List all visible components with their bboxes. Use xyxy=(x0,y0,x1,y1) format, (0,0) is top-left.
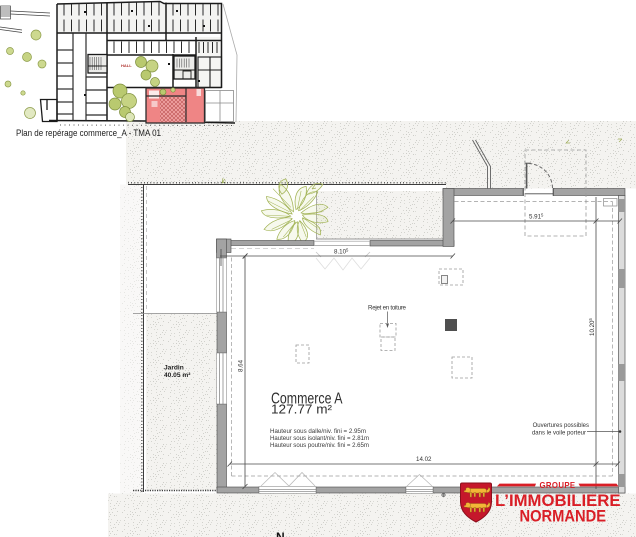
svg-text:Ouvertures possibles: Ouvertures possibles xyxy=(533,423,589,429)
svg-text:Hauteur sous poutre/niv. fini: Hauteur sous poutre/niv. fini = 2.65m xyxy=(270,442,369,449)
svg-text:GROUPE: GROUPE xyxy=(540,480,576,490)
svg-text:N: N xyxy=(276,530,285,537)
svg-text:NORMANDE: NORMANDE xyxy=(520,507,607,526)
svg-text:8.64: 8.64 xyxy=(238,359,245,372)
svg-text:Jardin: Jardin xyxy=(164,365,184,372)
svg-text:Hauteur sous isolant/niv. fini: Hauteur sous isolant/niv. fini = 2.81m xyxy=(270,435,369,442)
svg-text:Hauteur sous dalle/niv. fini =: Hauteur sous dalle/niv. fini = 2.95m xyxy=(270,428,366,435)
svg-text:40.05 m²: 40.05 m² xyxy=(164,372,191,379)
svg-text:HALL: HALL xyxy=(121,63,132,68)
svg-text:14.02: 14.02 xyxy=(416,456,432,463)
svg-text:Rejet en toiture: Rejet en toiture xyxy=(368,305,407,312)
svg-text:127.77 m²: 127.77 m² xyxy=(271,402,333,417)
svg-text:Plan de repérage commerce_A -: Plan de repérage commerce_A - TMA 01 xyxy=(16,128,161,138)
svg-text:dans le voile porteur: dans le voile porteur xyxy=(532,431,586,437)
